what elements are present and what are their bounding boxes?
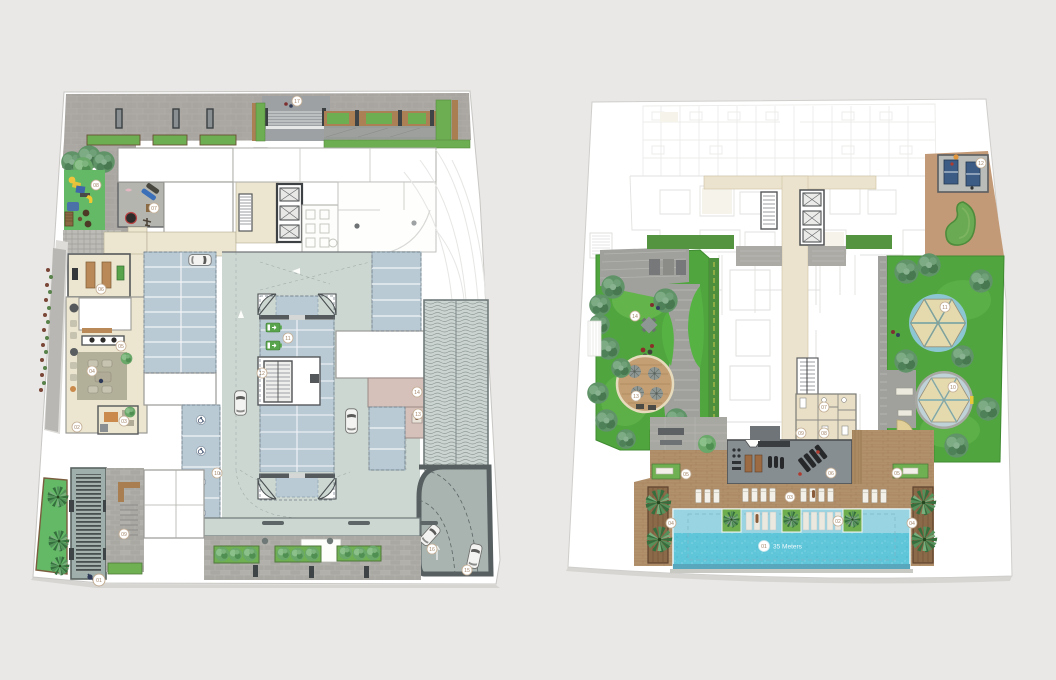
svg-text:10: 10 bbox=[950, 385, 956, 391]
svg-text:16: 16 bbox=[429, 547, 435, 553]
svg-text:05: 05 bbox=[683, 472, 689, 478]
svg-text:12: 12 bbox=[978, 161, 984, 167]
svg-text:09: 09 bbox=[798, 431, 804, 437]
svg-text:03: 03 bbox=[787, 495, 793, 501]
svg-text:04: 04 bbox=[668, 521, 674, 527]
svg-text:02: 02 bbox=[835, 519, 841, 525]
svg-text:02: 02 bbox=[74, 425, 80, 431]
svg-text:17: 17 bbox=[294, 99, 300, 105]
svg-text:04: 04 bbox=[909, 521, 915, 527]
svg-text:01: 01 bbox=[96, 578, 102, 584]
svg-text:10: 10 bbox=[214, 471, 220, 477]
svg-text:09: 09 bbox=[121, 532, 127, 538]
svg-text:13: 13 bbox=[633, 394, 639, 400]
svg-text:06: 06 bbox=[98, 287, 104, 293]
svg-text:05: 05 bbox=[118, 344, 124, 350]
svg-text:08: 08 bbox=[93, 183, 99, 189]
svg-text:06: 06 bbox=[828, 471, 834, 477]
svg-text:14: 14 bbox=[414, 390, 420, 396]
svg-text:07: 07 bbox=[151, 206, 157, 212]
svg-text:13: 13 bbox=[415, 412, 421, 418]
svg-text:35 Meters: 35 Meters bbox=[773, 544, 803, 551]
svg-text:11: 11 bbox=[942, 305, 947, 311]
svg-text:03: 03 bbox=[121, 419, 127, 425]
svg-text:04: 04 bbox=[89, 369, 95, 375]
svg-text:14: 14 bbox=[632, 314, 638, 320]
svg-text:11: 11 bbox=[285, 336, 290, 342]
svg-text:15: 15 bbox=[464, 568, 470, 574]
svg-text:08: 08 bbox=[821, 431, 827, 437]
svg-text:01: 01 bbox=[761, 544, 767, 550]
svg-text:05: 05 bbox=[894, 471, 900, 477]
svg-text:07: 07 bbox=[821, 405, 827, 411]
